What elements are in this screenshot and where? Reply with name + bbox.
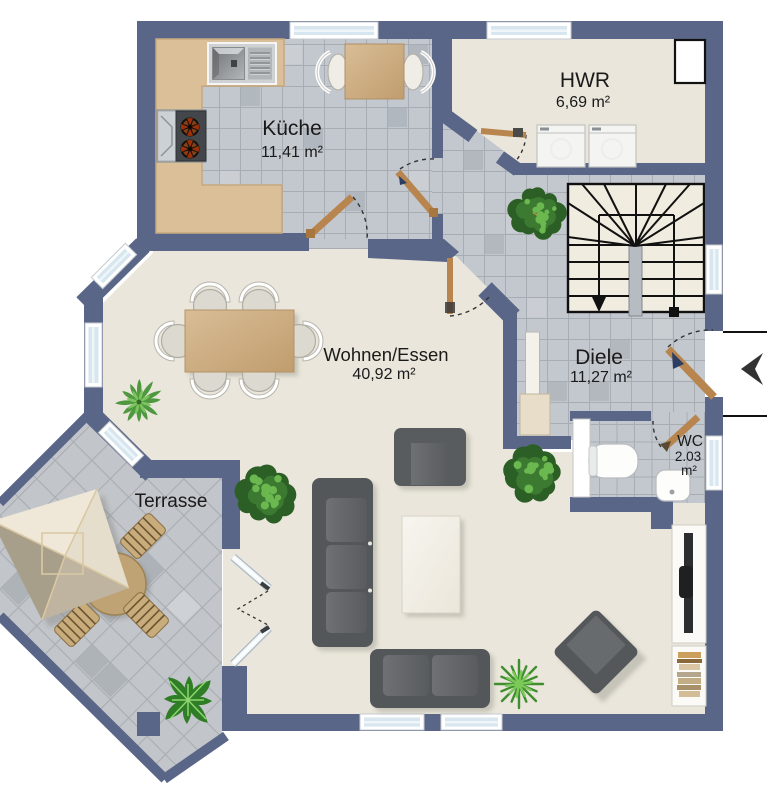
svg-text:WC: WC (677, 433, 703, 450)
svg-text:40,92 m²: 40,92 m² (352, 366, 416, 383)
svg-text:Küche: Küche (262, 117, 322, 140)
svg-text:Terrasse: Terrasse (135, 491, 208, 512)
svg-text:Wohnen/Essen: Wohnen/Essen (323, 344, 448, 365)
svg-text:11,27 m²: 11,27 m² (570, 369, 633, 386)
svg-text:6,69 m²: 6,69 m² (556, 94, 611, 111)
svg-text:m²: m² (681, 463, 697, 478)
svg-text:HWR: HWR (560, 69, 610, 92)
svg-text:11,41 m²: 11,41 m² (261, 144, 324, 161)
svg-text:Diele: Diele (575, 346, 623, 369)
svg-text:2.03: 2.03 (675, 449, 701, 464)
